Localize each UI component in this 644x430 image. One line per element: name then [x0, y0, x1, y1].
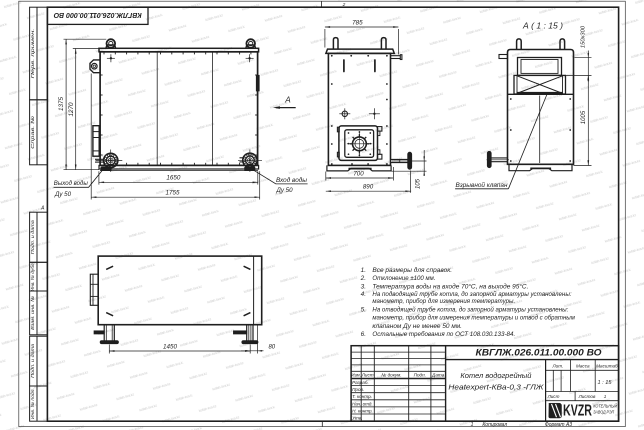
svg-text:А ( 1 : 15 ): А ( 1 : 15 )	[522, 22, 563, 31]
svg-text:Листов: Листов	[578, 394, 596, 399]
svg-text:Масса: Масса	[576, 364, 590, 369]
svg-text:1650: 1650	[166, 175, 181, 182]
svg-text:Температура воды на входе 70°С: Температура воды на входе 70°С, на выход…	[372, 283, 528, 291]
svg-text:ЗАВОД РЭП: ЗАВОД РЭП	[593, 410, 614, 416]
svg-text:Отклонение ±100 мм.: Отклонение ±100 мм.	[372, 275, 435, 282]
svg-text:Т. контр.: Т. контр.	[352, 394, 372, 399]
svg-text:3.: 3.	[361, 284, 366, 291]
svg-text:Лист: Лист	[361, 373, 374, 378]
svg-text:5.: 5.	[361, 306, 366, 313]
svg-text:Справ. №: Справ. №	[30, 116, 35, 149]
svg-text:манометр, прибор для измерения: манометр, прибор для измерения температу…	[372, 297, 515, 305]
svg-text:№ докум.: № докум.	[381, 373, 401, 378]
svg-text:Инв. № подл.: Инв. № подл.	[30, 388, 35, 419]
svg-text:манометр, прибор для измерения: манометр, прибор для измерения температу…	[372, 314, 575, 322]
svg-text:Лист: Лист	[547, 394, 560, 399]
svg-text:Взрывной клапан: Взрывной клапан	[456, 182, 509, 189]
svg-text:Утв.: Утв.	[352, 416, 362, 421]
svg-text:1755: 1755	[165, 190, 180, 197]
svg-text:4.: 4.	[361, 291, 366, 298]
svg-text:Лит.: Лит.	[552, 364, 564, 369]
svg-text:1375: 1375	[58, 97, 65, 112]
svg-text:1: 1	[471, 422, 474, 428]
svg-text:Ду 50: Ду 50	[54, 191, 72, 198]
svg-text:клапаном Ду не менее 50 мм.: клапаном Ду не менее 50 мм.	[372, 323, 462, 330]
svg-text:Котел водогрейный: Котел водогрейный	[460, 371, 531, 380]
svg-text:Инв. № дубл.: Инв. № дубл.	[30, 262, 35, 291]
svg-text:Пров.: Пров.	[352, 387, 364, 392]
svg-text:Разраб.: Разраб.	[352, 380, 369, 385]
svg-text:Все размеры для справок.: Все размеры для справок.	[372, 266, 452, 274]
svg-text:Масштаб: Масштаб	[596, 364, 618, 369]
svg-text:Нач. отд.: Нач. отд.	[352, 401, 373, 406]
svg-text:Подп. и дата: Подп. и дата	[30, 220, 35, 255]
svg-text:6.: 6.	[361, 331, 366, 338]
svg-text:Перв. примен.: Перв. примен.	[30, 28, 35, 78]
svg-text:785: 785	[352, 20, 363, 27]
svg-text:700: 700	[353, 170, 364, 177]
svg-text:1: 1	[604, 394, 607, 399]
svg-text:890: 890	[363, 184, 374, 191]
svg-text:1005: 1005	[581, 110, 587, 124]
svg-text:Копировал: Копировал	[482, 422, 507, 428]
svg-text:2.: 2.	[360, 275, 366, 282]
svg-text:На отводящей трубе котла, до з: На отводящей трубе котла, до запорной ар…	[372, 305, 568, 313]
svg-text:105: 105	[416, 178, 422, 189]
svg-text:А: А	[284, 96, 291, 105]
svg-text:Выход воды: Выход воды	[54, 180, 88, 187]
svg-text:150х300: 150х300	[580, 25, 586, 48]
svg-text:КВГЛЖ.026.011.00.000 ВО: КВГЛЖ.026.011.00.000 ВО	[53, 11, 141, 20]
svg-text:1450: 1450	[163, 343, 178, 350]
svg-text:Подп. и дата: Подп. и дата	[30, 343, 35, 378]
svg-text:На подводящей трубе котла, до: На подводящей трубе котла, до запорной а…	[372, 290, 571, 298]
svg-text:Остальные требования по ОСТ 10: Остальные требования по ОСТ 108.030.133-…	[372, 330, 515, 338]
svg-text:Формат А3: Формат А3	[545, 422, 573, 428]
svg-text:Взам. инв. №: Взам. инв. №	[30, 296, 35, 330]
svg-text:1270: 1270	[68, 102, 75, 117]
svg-text:1.: 1.	[361, 267, 366, 274]
svg-text:Дата: Дата	[431, 373, 445, 378]
svg-text:КВГЛЖ.026.011.00.000 ВО: КВГЛЖ.026.011.00.000 ВО	[476, 348, 602, 358]
svg-text:А: А	[40, 206, 45, 212]
svg-text:Вход воды: Вход воды	[276, 177, 307, 184]
svg-text:1 : 15: 1 : 15	[598, 380, 613, 386]
svg-text:Ду 50: Ду 50	[275, 187, 293, 194]
svg-text:Н. контр.: Н. контр.	[352, 408, 373, 413]
svg-text:Heatexpert-КВа-0,3 -ГЛЖ: Heatexpert-КВа-0,3 -ГЛЖ	[448, 382, 543, 391]
svg-text:KVZR: KVZR	[563, 403, 592, 420]
svg-text:80: 80	[268, 344, 275, 350]
svg-text:Подп.: Подп.	[414, 373, 426, 378]
svg-text:Изм.: Изм.	[351, 373, 361, 378]
